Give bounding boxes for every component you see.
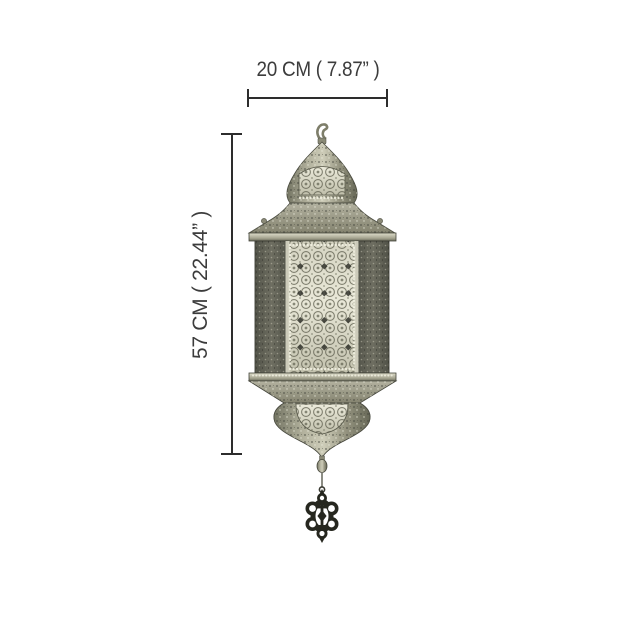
height-dimension-line xyxy=(231,133,233,455)
lantern-bell xyxy=(274,403,370,458)
height-dimension-tick-bottom xyxy=(221,453,242,455)
lantern-dome xyxy=(287,142,357,203)
lantern-cornice-bottom xyxy=(249,373,396,381)
lantern-hook xyxy=(317,124,327,144)
lantern-photo xyxy=(240,118,410,550)
width-dimension-tick-right xyxy=(386,89,388,107)
lantern-illustration xyxy=(240,118,410,550)
height-dimension-tick-top xyxy=(221,133,242,135)
lantern-roof xyxy=(249,203,395,233)
width-dimension-line xyxy=(247,97,388,99)
lantern-body xyxy=(255,241,389,373)
width-dimension-label: 20 CM ( 7.87” ) xyxy=(242,58,395,82)
height-dimension-label: 57 CM ( 22.44” ) xyxy=(188,185,214,385)
lantern-cornice-top xyxy=(249,233,396,241)
lantern-pendant xyxy=(306,489,339,543)
lantern-finial xyxy=(317,456,327,492)
width-dimension-tick-left xyxy=(247,89,249,107)
lantern-taper xyxy=(249,381,396,403)
product-dimension-diagram: 20 CM ( 7.87” ) 57 CM ( 22.44” ) xyxy=(0,0,640,640)
